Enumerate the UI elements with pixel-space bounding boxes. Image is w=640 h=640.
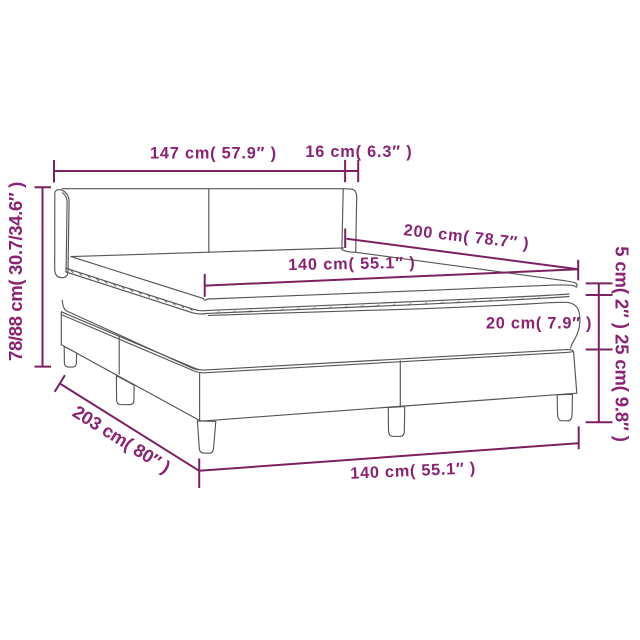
svg-text:5 cm( 2″ ): 5 cm( 2″ )	[611, 246, 632, 329]
svg-text:16 cm( 6.3″ ): 16 cm( 6.3″ )	[305, 143, 411, 161]
svg-text:147 cm( 57.9″ ): 147 cm( 57.9″ )	[150, 144, 276, 162]
svg-text:78/88 cm( 30.7/34.6″ ): 78/88 cm( 30.7/34.6″ )	[5, 182, 26, 361]
svg-text:140 cm( 55.1″ ): 140 cm( 55.1″ )	[288, 254, 415, 274]
svg-text:25 cm( 9.8″ ): 25 cm( 9.8″ )	[611, 334, 632, 442]
svg-text:20 cm( 7.9″ ): 20 cm( 7.9″ )	[486, 314, 592, 332]
